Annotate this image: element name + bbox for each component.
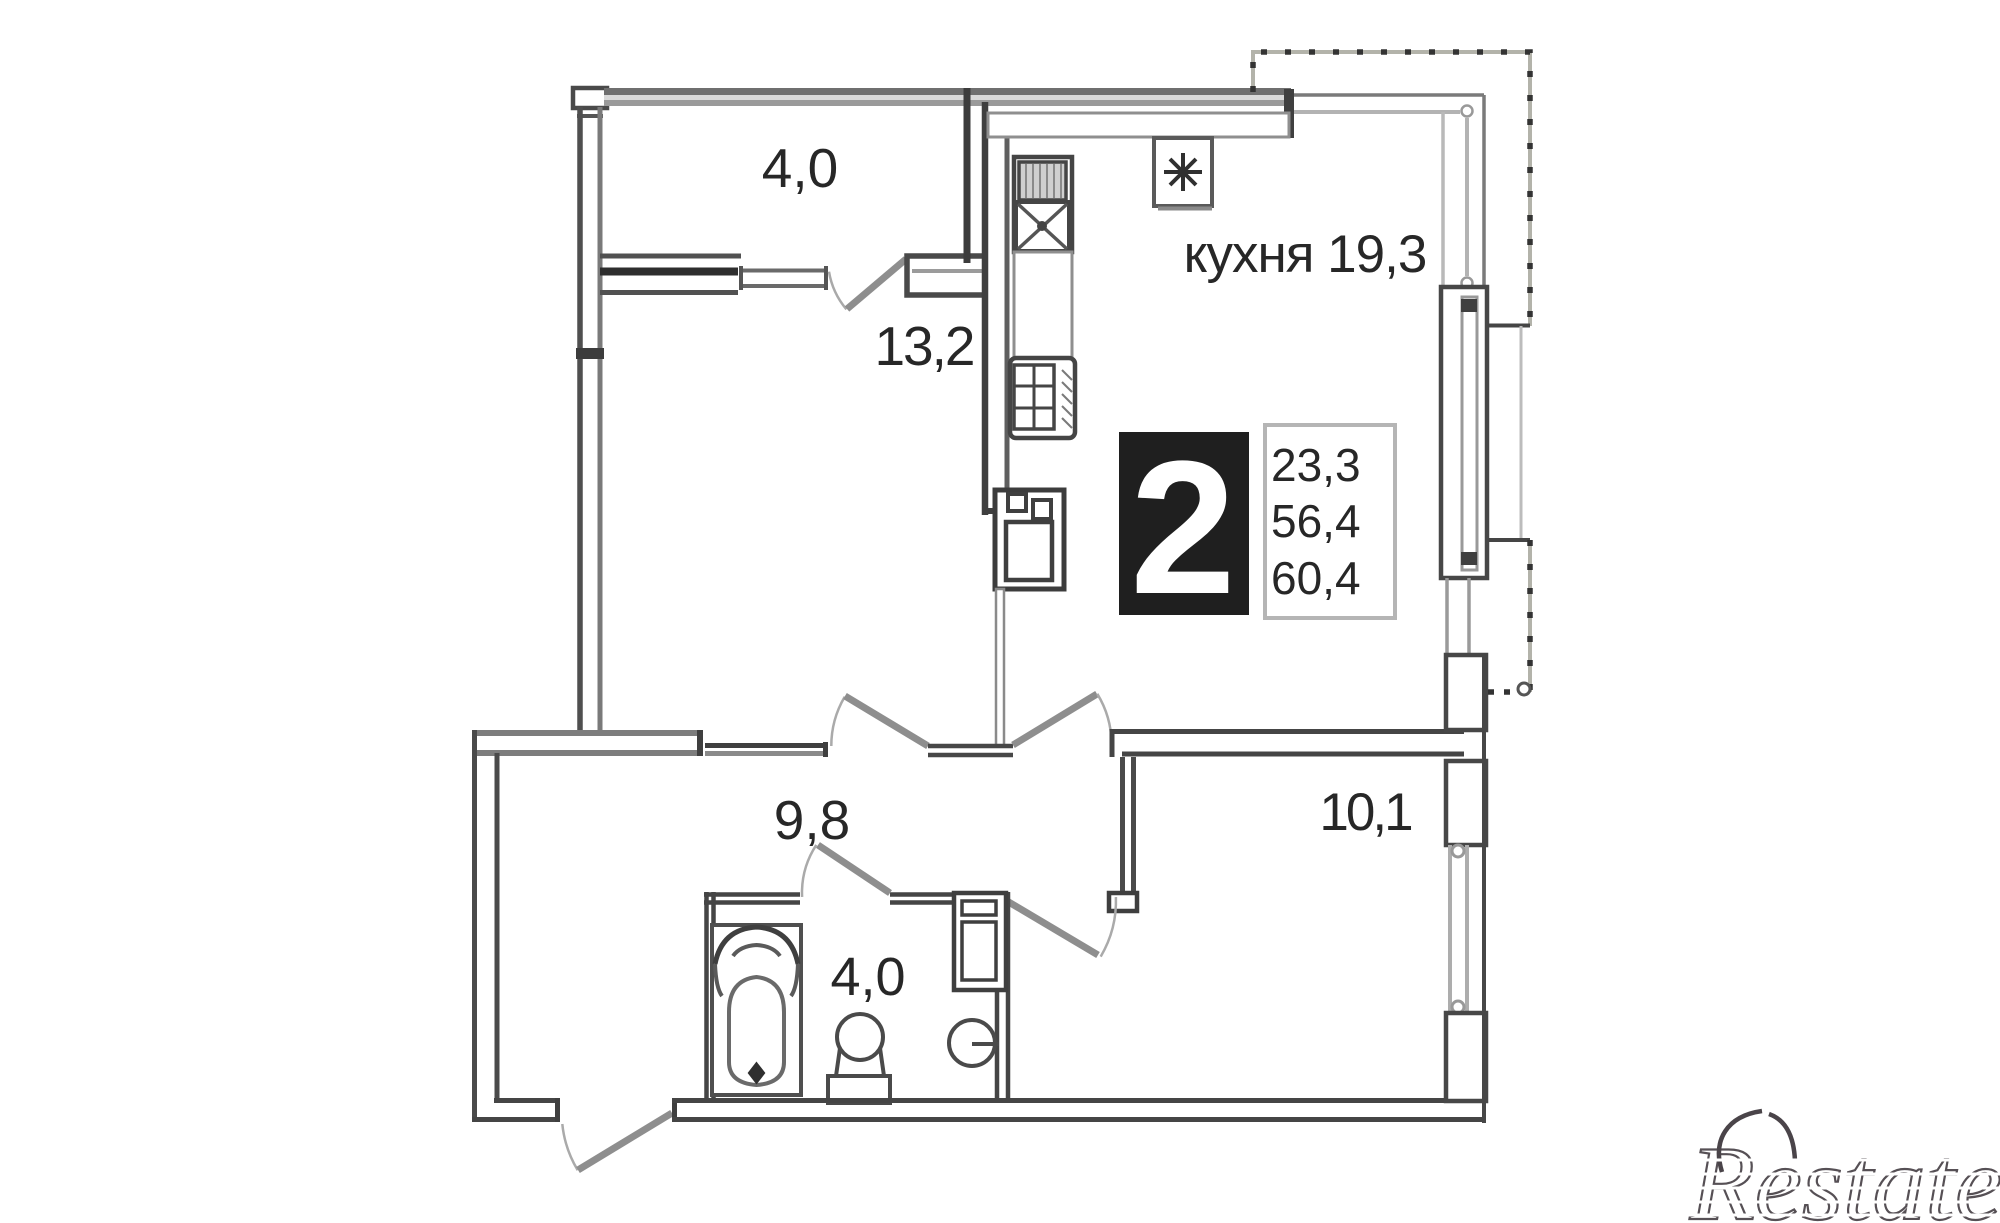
svg-text:кухня 19,3: кухня 19,3 [1184, 225, 1427, 284]
svg-text:4,0: 4,0 [762, 137, 838, 199]
svg-text:4,0: 4,0 [830, 947, 905, 1007]
svg-text:9,8: 9,8 [774, 789, 850, 851]
svg-text:2: 2 [1130, 422, 1236, 634]
svg-text:10,1: 10,1 [1319, 783, 1411, 842]
svg-text:13,2: 13,2 [874, 315, 973, 377]
svg-text:56,4: 56,4 [1271, 495, 1361, 547]
svg-text:60,4: 60,4 [1271, 552, 1361, 604]
svg-text:23,3: 23,3 [1271, 439, 1361, 491]
